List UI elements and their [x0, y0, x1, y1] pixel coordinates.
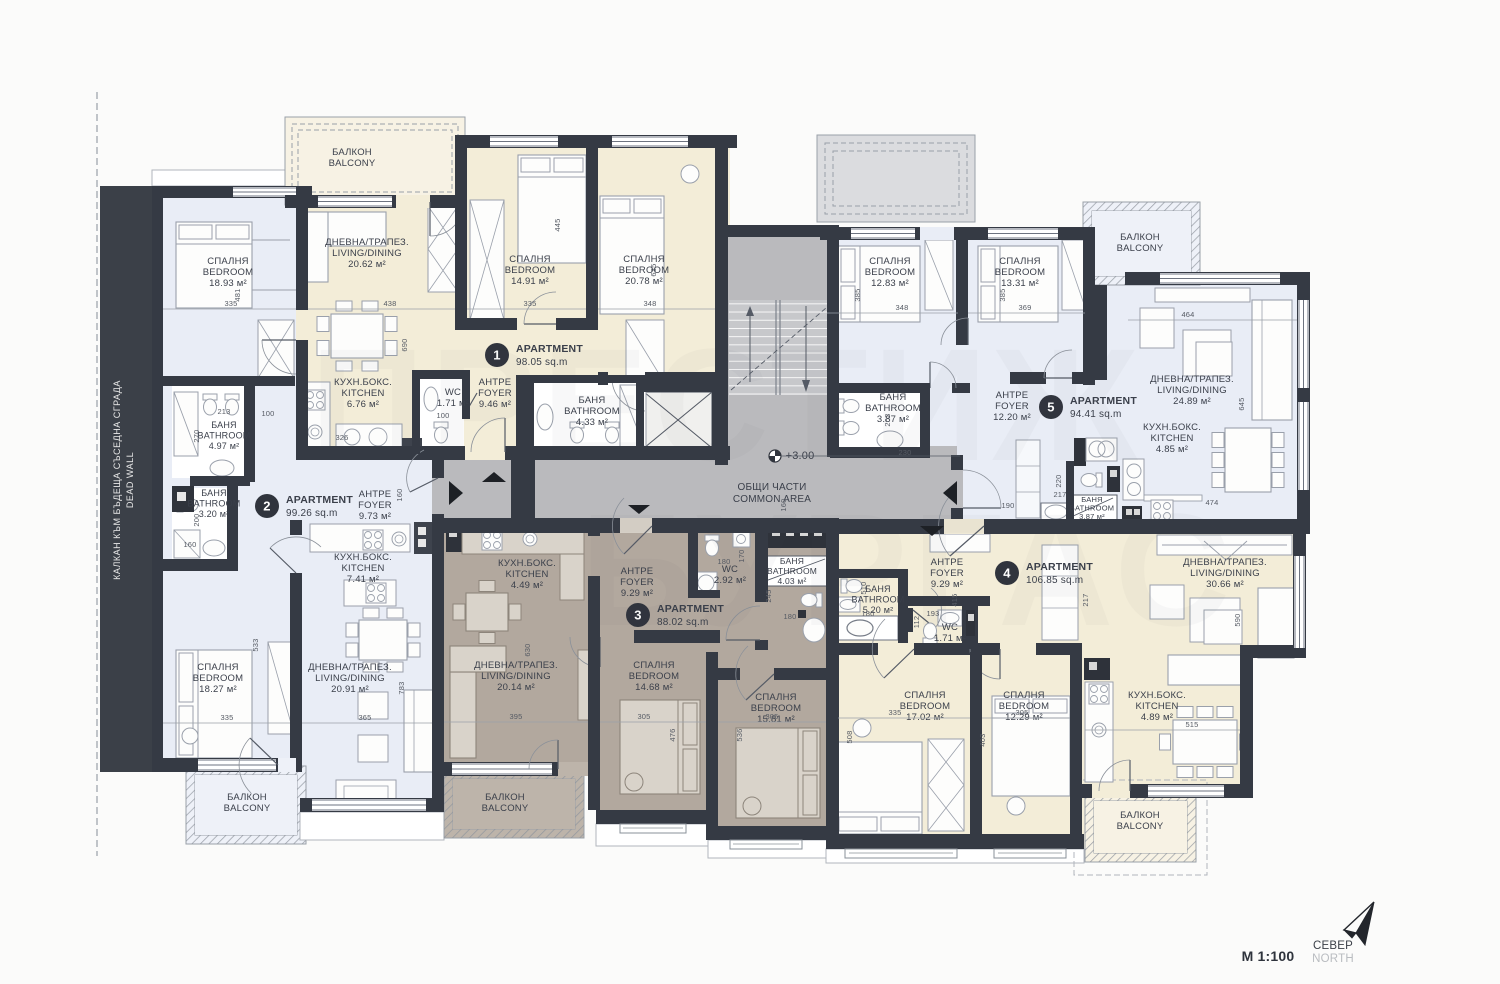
svg-text:KITCHEN: KITCHEN — [1135, 701, 1178, 712]
svg-text:3.20 м²: 3.20 м² — [199, 509, 230, 519]
svg-text:100: 100 — [261, 409, 274, 418]
svg-text:213: 213 — [217, 407, 230, 416]
svg-text:FOYER: FOYER — [358, 500, 392, 511]
svg-text:КУХН.БОКС.: КУХН.БОКС. — [1143, 422, 1201, 433]
svg-text:КАЛКАН КЪМ БЪДЕЩА СЪСЕДНА СГРА: КАЛКАН КЪМ БЪДЕЩА СЪСЕДНА СГРАДА — [112, 380, 122, 580]
svg-text:305: 305 — [765, 712, 778, 721]
svg-text:BEDROOM: BEDROOM — [865, 267, 916, 278]
svg-text:305: 305 — [637, 712, 650, 721]
svg-text:481: 481 — [233, 288, 242, 301]
svg-text:335: 335 — [523, 299, 536, 308]
svg-text:630: 630 — [523, 643, 532, 656]
svg-text:BEDROOM: BEDROOM — [900, 701, 951, 712]
svg-text:4.97 м²: 4.97 м² — [209, 441, 240, 451]
svg-text:БАЛКОН: БАЛКОН — [1120, 810, 1160, 821]
svg-text:160: 160 — [183, 540, 196, 549]
svg-text:LIVING/DINING: LIVING/DINING — [332, 248, 402, 259]
svg-text:СПАЛНЯ: СПАЛНЯ — [633, 660, 674, 671]
svg-text:ПРЕСТИЖ: ПРЕСТИЖ — [310, 315, 1142, 494]
svg-text:BEDROOM: BEDROOM — [203, 267, 254, 278]
svg-text:СПАЛНЯ: СПАЛНЯ — [904, 690, 945, 701]
svg-text:270: 270 — [192, 429, 201, 442]
svg-text:BEDROOM: BEDROOM — [505, 265, 556, 276]
svg-text:KITCHEN: KITCHEN — [1150, 433, 1193, 444]
svg-text:ДНЕВНА/ТРАПЕЗ.: ДНЕВНА/ТРАПЕЗ. — [325, 237, 409, 248]
svg-text:7.41 м²: 7.41 м² — [347, 574, 379, 585]
svg-text:14.91 м²: 14.91 м² — [511, 276, 549, 287]
svg-text:4.89 м²: 4.89 м² — [1141, 712, 1173, 723]
svg-text:СПАЛНЯ: СПАЛНЯ — [509, 254, 550, 265]
svg-text:БАНЯ: БАНЯ — [201, 488, 227, 498]
svg-text:ДНЕВНА/ТРАПЕЗ.: ДНЕВНА/ТРАПЕЗ. — [308, 662, 392, 673]
svg-text:348: 348 — [643, 299, 656, 308]
svg-text:BALCONY: BALCONY — [224, 803, 271, 814]
svg-text:BEDROOM: BEDROOM — [619, 265, 670, 276]
svg-text:КУХН.БОКС.: КУХН.БОКС. — [334, 552, 392, 563]
svg-text:533: 533 — [251, 638, 260, 651]
svg-text:BEDROOM: BEDROOM — [629, 671, 680, 682]
svg-text:BALCONY: BALCONY — [329, 158, 376, 169]
svg-text:DEAD WALL: DEAD WALL — [125, 452, 135, 508]
svg-text:24.89 м²: 24.89 м² — [1173, 396, 1211, 407]
svg-text:СПАЛНЯ: СПАЛНЯ — [999, 256, 1040, 267]
svg-text:783: 783 — [397, 681, 406, 694]
svg-text:20.14 м²: 20.14 м² — [497, 682, 535, 693]
svg-text:12.83 м²: 12.83 м² — [871, 278, 909, 289]
svg-text:645: 645 — [1237, 397, 1246, 410]
svg-text:APARTMENT: APARTMENT — [286, 494, 353, 506]
svg-text:403: 403 — [978, 733, 987, 746]
svg-text:200: 200 — [192, 513, 201, 526]
svg-text:385: 385 — [853, 288, 862, 301]
svg-text:4.85 м²: 4.85 м² — [1156, 444, 1188, 455]
svg-text:20.91 м²: 20.91 м² — [331, 684, 369, 695]
svg-text:NORTH: NORTH — [1312, 953, 1354, 965]
svg-text:КУХН.БОКС.: КУХН.БОКС. — [498, 558, 556, 569]
svg-text:476: 476 — [668, 728, 677, 741]
svg-text:17.02 м²: 17.02 м² — [906, 712, 944, 723]
svg-text:13.31 м²: 13.31 м² — [1001, 278, 1039, 289]
svg-text:335: 335 — [888, 708, 901, 717]
svg-text:18.93 м²: 18.93 м² — [209, 278, 247, 289]
svg-text:БАЛКОН: БАЛКОН — [485, 792, 525, 803]
svg-text:ДНЕВНА/ТРАПЕЗ.: ДНЕВНА/ТРАПЕЗ. — [474, 660, 558, 671]
svg-text:БАЛКОН: БАЛКОН — [1120, 232, 1160, 243]
svg-text:LIVING/DINING: LIVING/DINING — [315, 673, 385, 684]
svg-text:464: 464 — [1181, 310, 1194, 319]
svg-text:BATHROOM: BATHROOM — [198, 431, 251, 441]
svg-text:БУРГАС: БУРГАС — [580, 480, 1235, 659]
svg-text:14.68 м²: 14.68 м² — [635, 682, 673, 693]
svg-text:БАЛКОН: БАЛКОН — [227, 792, 267, 803]
svg-text:9.73 м²: 9.73 м² — [359, 511, 391, 522]
svg-text:395: 395 — [509, 712, 522, 721]
svg-text:БАНЯ: БАНЯ — [211, 420, 237, 430]
svg-text:BALCONY: BALCONY — [1117, 243, 1164, 254]
svg-text:4.49 м²: 4.49 м² — [511, 580, 543, 591]
svg-text:365: 365 — [358, 713, 371, 722]
svg-text:635: 635 — [649, 263, 658, 276]
svg-text:СПАЛНЯ: СПАЛНЯ — [1003, 690, 1044, 701]
svg-text:СПАЛНЯ: СПАЛНЯ — [755, 692, 796, 703]
svg-text:М 1:100: М 1:100 — [1242, 948, 1295, 964]
svg-text:КУХН.БОКС.: КУХН.БОКС. — [1128, 690, 1186, 701]
svg-text:20.78 м²: 20.78 м² — [625, 276, 663, 287]
svg-text:KITCHEN: KITCHEN — [505, 569, 548, 580]
svg-text:СПАЛНЯ: СПАЛНЯ — [207, 256, 248, 267]
svg-text:536: 536 — [735, 728, 744, 741]
svg-text:18.27 м²: 18.27 м² — [199, 684, 237, 695]
svg-text:ДНЕВНА/ТРАПЕЗ.: ДНЕВНА/ТРАПЕЗ. — [1150, 374, 1234, 385]
svg-text:335: 335 — [220, 713, 233, 722]
svg-text:BEDROOM: BEDROOM — [193, 673, 244, 684]
svg-text:385: 385 — [998, 288, 1007, 301]
svg-text:LIVING/DINING: LIVING/DINING — [481, 671, 551, 682]
svg-text:BEDROOM: BEDROOM — [995, 267, 1046, 278]
svg-text:2: 2 — [263, 499, 270, 514]
svg-text:438: 438 — [383, 299, 396, 308]
svg-text:515: 515 — [1185, 720, 1198, 729]
svg-text:348: 348 — [895, 303, 908, 312]
svg-text:305: 305 — [1015, 708, 1028, 717]
svg-text:20.62 м²: 20.62 м² — [348, 259, 386, 270]
svg-text:СПАЛНЯ: СПАЛНЯ — [623, 254, 664, 265]
svg-text:БАЛКОН: БАЛКОН — [332, 147, 372, 158]
svg-text:KITCHEN: KITCHEN — [341, 563, 384, 574]
svg-text:369: 369 — [1018, 303, 1031, 312]
svg-text:BALCONY: BALCONY — [482, 803, 529, 814]
svg-text:BATHROOM: BATHROOM — [188, 499, 241, 509]
svg-text:99.26 sq.m: 99.26 sq.m — [286, 508, 337, 519]
svg-text:СПАЛНЯ: СПАЛНЯ — [869, 256, 910, 267]
svg-text:BALCONY: BALCONY — [1117, 821, 1164, 832]
svg-text:508: 508 — [845, 730, 854, 743]
svg-text:СЕВЕР: СЕВЕР — [1313, 940, 1353, 952]
svg-text:LIVING/DINING: LIVING/DINING — [1157, 385, 1227, 396]
svg-text:СПАЛНЯ: СПАЛНЯ — [197, 662, 238, 673]
svg-text:445: 445 — [553, 218, 562, 231]
